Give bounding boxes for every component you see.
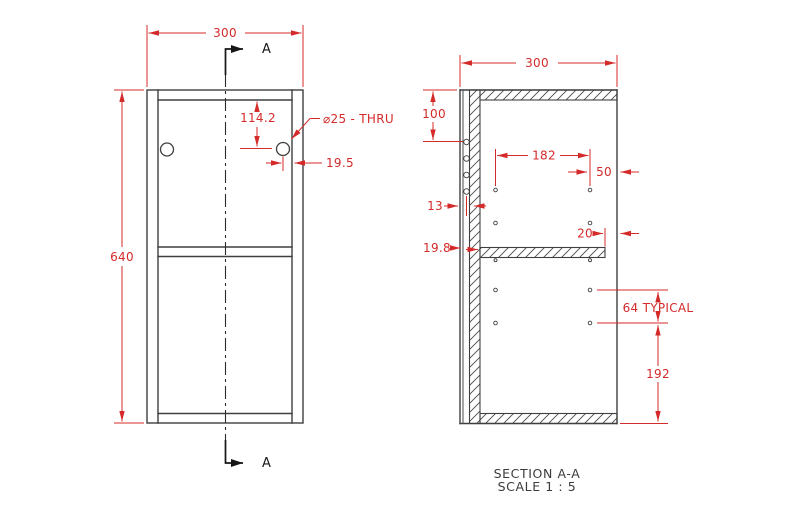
bottom-panel-section — [480, 414, 617, 424]
dim-hole-span: 182 — [496, 149, 591, 187]
pin-hole — [494, 188, 498, 192]
dim-hole-pitch: 64 TYPICAL — [597, 290, 693, 323]
pin-hole — [588, 321, 592, 325]
section-label-top: A — [262, 42, 271, 57]
technical-drawing: A A 300 640 114.2 ⌀25 - THRU — [0, 0, 800, 513]
pin-hole — [494, 221, 498, 225]
dim-top-to-hole-label: 100 — [422, 107, 446, 121]
drawing-sheet: A A 300 640 114.2 ⌀25 - THRU — [0, 0, 800, 513]
pin-hole — [494, 259, 497, 262]
pin-hole — [588, 188, 592, 192]
dim-shelf-setback: 20 — [577, 227, 639, 247]
dim-front-width-label: 300 — [213, 26, 237, 40]
dim-front-height: 640 — [110, 90, 144, 423]
shelf-section — [480, 248, 605, 258]
pin-hole — [494, 321, 498, 325]
back-hole — [464, 139, 470, 145]
dim-bottom-span-label: 192 — [646, 367, 670, 381]
pin-hole — [588, 221, 592, 225]
dim-section-depth-label: 300 — [525, 56, 549, 70]
dim-shelf-thickness-label: 19.8 — [423, 241, 451, 255]
dim-hole-to-front: 50 — [568, 165, 639, 179]
back-panel-holes — [464, 139, 470, 194]
dim-back-offset-label: 13 — [427, 199, 443, 213]
hole-callout: ⌀25 - THRU — [292, 112, 394, 139]
dim-front-height-label: 640 — [110, 250, 134, 264]
pin-hole — [589, 259, 592, 262]
section-arrow-top — [226, 49, 244, 75]
dim-top-to-hole: 100 — [422, 90, 463, 142]
dim-hole-from-side-label: 19.5 — [326, 156, 354, 170]
left-thru-hole — [161, 143, 174, 156]
dim-shelf-setback-label: 20 — [577, 227, 593, 241]
back-hole — [464, 172, 470, 178]
section-scale: SCALE 1 : 5 — [498, 479, 577, 494]
section-arrow-bottom — [226, 440, 244, 463]
hole-callout-label: ⌀25 - THRU — [323, 112, 394, 126]
dim-hole-from-top: 114.2 — [240, 102, 276, 149]
top-panel-section — [480, 90, 617, 100]
right-thru-hole — [277, 143, 290, 156]
back-hole — [464, 189, 470, 195]
dim-hole-span-label: 182 — [532, 149, 556, 163]
section-view-geometry — [460, 90, 617, 424]
back-hole — [464, 156, 470, 162]
front-view: A A 300 640 114.2 ⌀25 - THRU — [110, 25, 394, 471]
section-label-bottom: A — [262, 456, 271, 471]
dim-hole-from-top-label: 114.2 — [240, 111, 276, 125]
pin-hole — [588, 288, 592, 292]
dim-bottom-span: 192 — [620, 325, 670, 424]
pin-hole — [494, 288, 498, 292]
back-panel-section — [470, 90, 481, 424]
hole-callout-leader — [292, 119, 321, 140]
view-caption: SECTION A-A SCALE 1 : 5 — [494, 466, 581, 494]
section-view: 300 100 182 50 13 19.8 — [422, 55, 693, 494]
dim-section-depth: 300 — [460, 55, 617, 87]
dim-hole-to-front-label: 50 — [596, 165, 612, 179]
dim-hole-from-side: 19.5 — [266, 156, 354, 171]
dim-hole-pitch-label: 64 TYPICAL — [623, 301, 694, 315]
